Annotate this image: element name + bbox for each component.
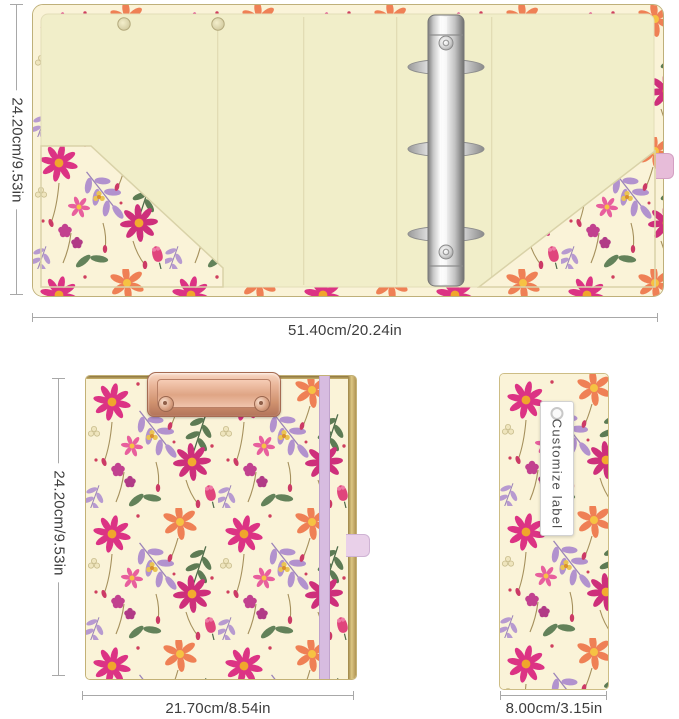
customize-label-tag: Customize label xyxy=(540,401,574,536)
dim-tick xyxy=(500,691,501,700)
dim-tick xyxy=(52,378,65,379)
dim-tick xyxy=(52,675,65,676)
open-binder-graphic xyxy=(33,5,663,296)
clip-screw-left xyxy=(158,396,174,412)
ribbon-loop xyxy=(656,153,674,179)
dim-tick xyxy=(353,691,354,700)
dim-tick xyxy=(10,4,23,5)
front-height-dimension-label: 24.20cm/9.53in xyxy=(50,463,69,582)
front-width-dimension-label: 21.70cm/8.54in xyxy=(165,700,270,717)
open-height-dimension-label: 24.20cm/9.53in xyxy=(8,90,27,209)
customize-label-text: Customize label xyxy=(550,419,565,530)
dim-tick xyxy=(657,313,658,322)
spine-width-dimension-label: 8.00cm/3.15in xyxy=(506,700,603,717)
gold-trim-right xyxy=(348,376,356,679)
elastic-band xyxy=(319,376,330,679)
clip-screw-right xyxy=(254,396,270,412)
open-width-dimension-label: 51.40cm/20.24in xyxy=(288,322,402,339)
pen-loop-tab xyxy=(346,534,370,557)
dim-tick xyxy=(10,294,23,295)
open-binder-view xyxy=(32,4,664,297)
dim-tick xyxy=(32,313,33,322)
dim-tick xyxy=(82,691,83,700)
clipboard-front-view xyxy=(85,375,357,680)
clipboard-floral-cover xyxy=(86,376,356,679)
dim-tick xyxy=(606,691,607,700)
spine-width-dimension-line xyxy=(500,695,607,696)
open-width-dimension-line xyxy=(32,317,658,318)
front-width-dimension-line xyxy=(82,695,354,696)
product-dimension-image: 24.20cm/9.53in 51.40cm/20.24in 24.20cm/9… xyxy=(0,0,679,719)
clipboard-clip xyxy=(147,372,281,417)
